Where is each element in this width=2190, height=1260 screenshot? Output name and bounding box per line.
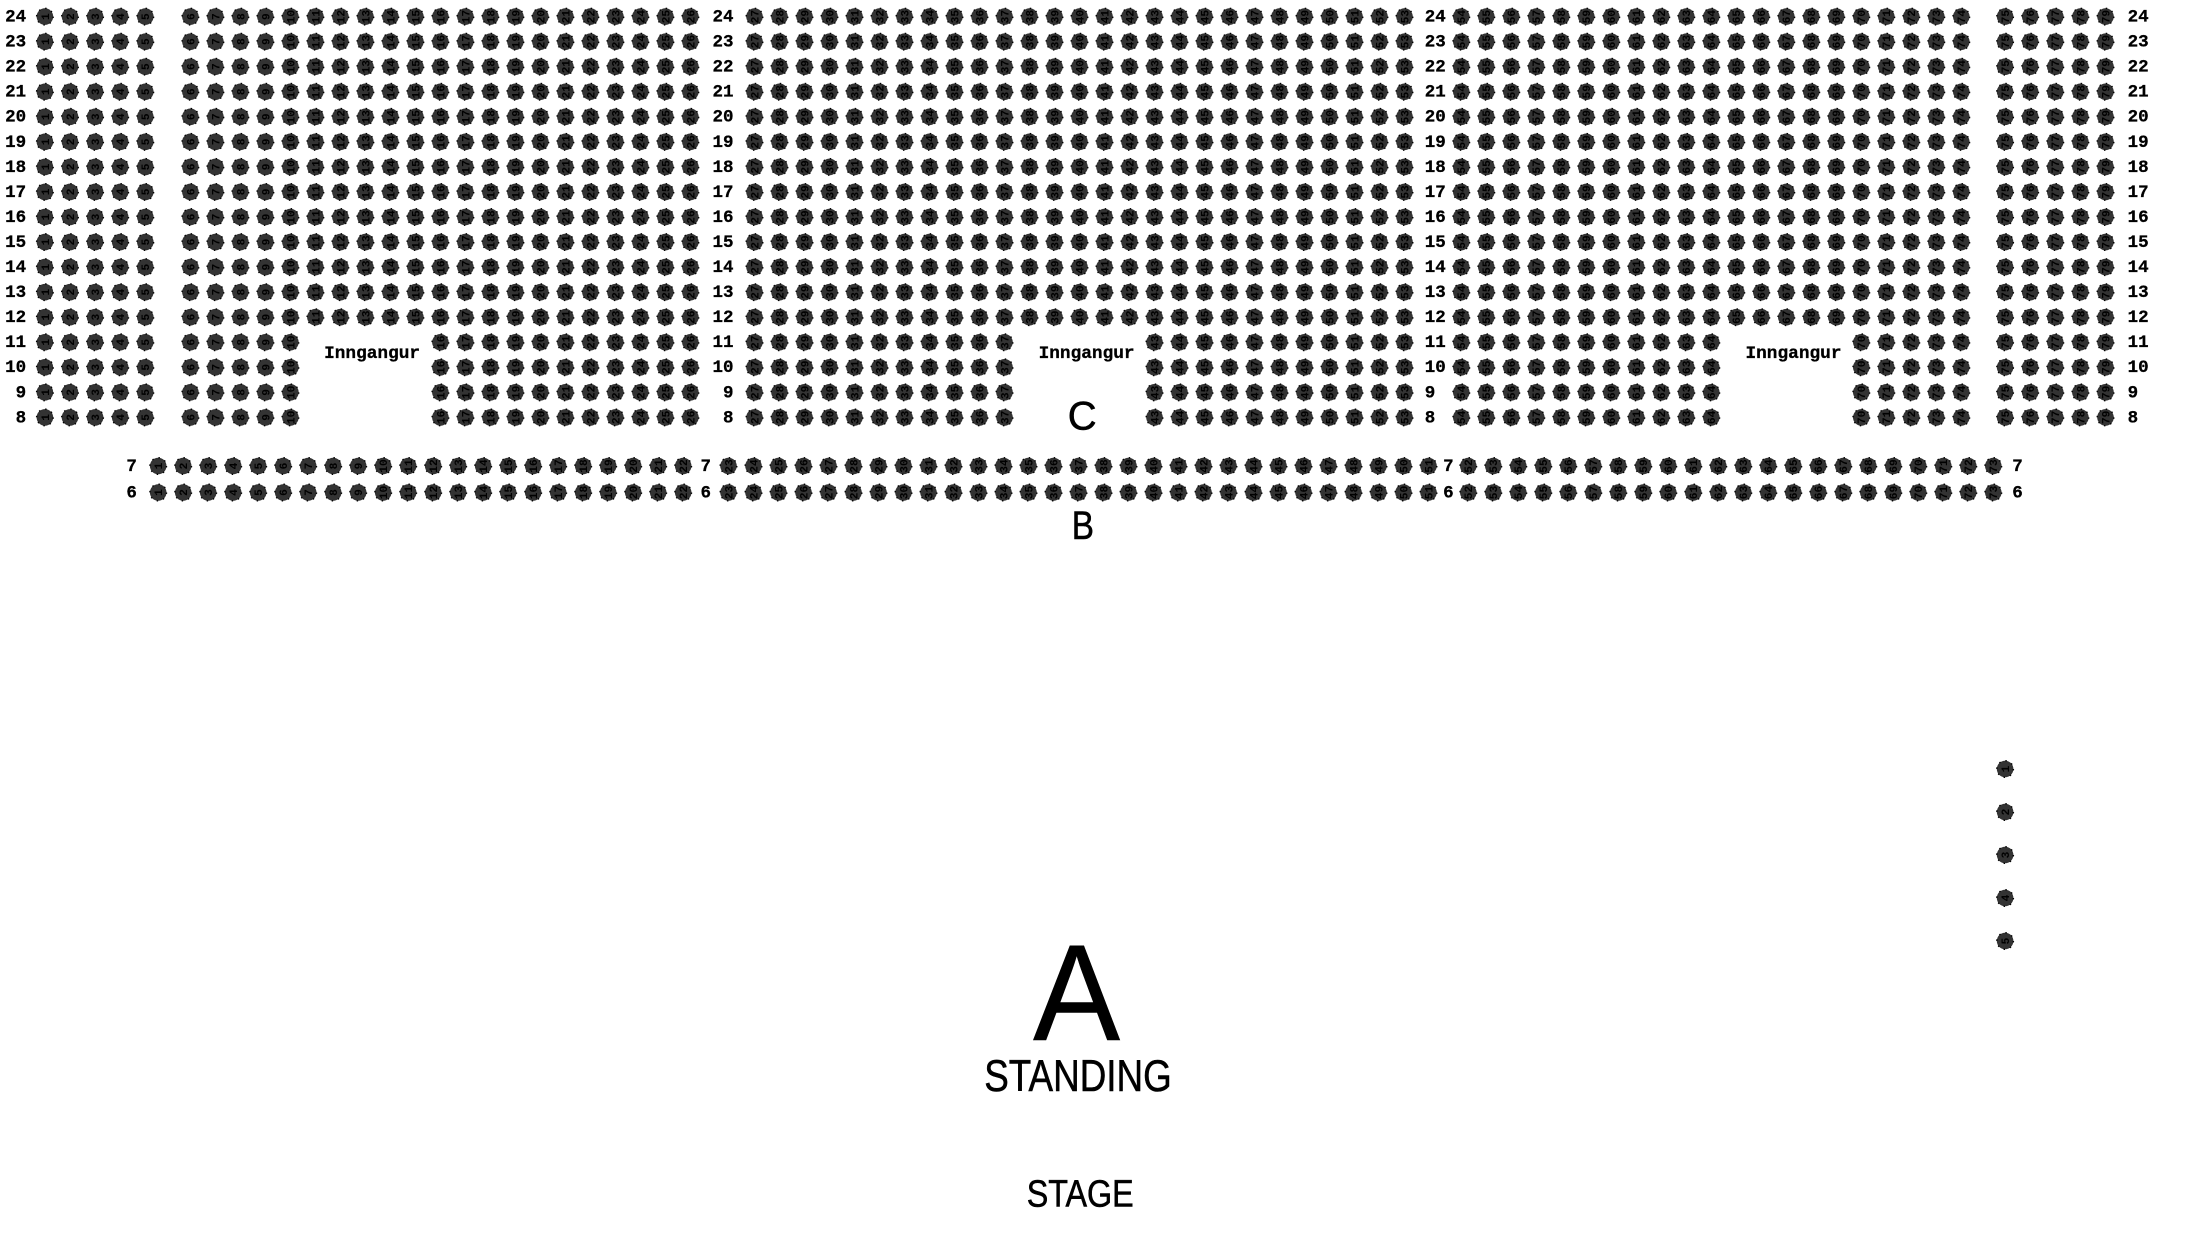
svg-text:Inngangur: Inngangur xyxy=(324,344,420,364)
svg-text:21: 21 xyxy=(712,83,733,103)
svg-text:22: 22 xyxy=(2128,58,2149,78)
svg-text:20: 20 xyxy=(1425,108,1446,128)
svg-text:17: 17 xyxy=(1425,183,1446,203)
svg-text:20: 20 xyxy=(5,108,26,128)
svg-text:19: 19 xyxy=(5,133,26,153)
svg-text:15: 15 xyxy=(5,233,26,253)
svg-text:18: 18 xyxy=(1425,158,1446,178)
svg-text:24: 24 xyxy=(1425,8,1446,28)
svg-text:10: 10 xyxy=(2128,358,2149,378)
svg-text:23: 23 xyxy=(712,33,733,53)
svg-text:16: 16 xyxy=(712,208,733,228)
svg-text:12: 12 xyxy=(1425,308,1446,328)
svg-text:14: 14 xyxy=(712,258,733,278)
svg-text:8: 8 xyxy=(16,408,27,428)
svg-text:STANDING: STANDING xyxy=(984,1052,1172,1101)
svg-text:13: 13 xyxy=(712,283,733,303)
svg-text:STAGE: STAGE xyxy=(1027,1173,1134,1215)
svg-text:12: 12 xyxy=(2128,308,2149,328)
svg-text:23: 23 xyxy=(5,33,26,53)
svg-text:Inngangur: Inngangur xyxy=(1745,344,1841,364)
svg-text:10: 10 xyxy=(5,358,26,378)
svg-text:B: B xyxy=(1072,504,1094,548)
svg-text:23: 23 xyxy=(1425,33,1446,53)
svg-text:2: 2 xyxy=(2001,808,2013,815)
svg-text:18: 18 xyxy=(5,158,26,178)
svg-text:1: 1 xyxy=(2001,765,2013,772)
svg-text:11: 11 xyxy=(2128,333,2149,353)
svg-text:6: 6 xyxy=(2012,483,2023,503)
svg-text:6: 6 xyxy=(701,483,712,503)
svg-text:9: 9 xyxy=(16,383,27,403)
svg-text:14: 14 xyxy=(2128,258,2149,278)
svg-text:21: 21 xyxy=(5,83,26,103)
svg-text:12: 12 xyxy=(5,308,26,328)
svg-text:6: 6 xyxy=(126,483,137,503)
svg-text:7: 7 xyxy=(2012,457,2023,477)
svg-text:9: 9 xyxy=(723,383,734,403)
svg-text:24: 24 xyxy=(712,8,733,28)
svg-text:14: 14 xyxy=(1425,258,1446,278)
svg-text:17: 17 xyxy=(5,183,26,203)
svg-text:C: C xyxy=(1068,395,1097,439)
svg-text:17: 17 xyxy=(712,183,733,203)
svg-text:24: 24 xyxy=(5,8,26,28)
svg-text:18: 18 xyxy=(2128,158,2149,178)
svg-text:21: 21 xyxy=(1425,83,1446,103)
svg-text:Inngangur: Inngangur xyxy=(1039,344,1135,364)
svg-text:18: 18 xyxy=(712,158,733,178)
svg-text:8: 8 xyxy=(1425,408,1436,428)
svg-text:7: 7 xyxy=(126,457,137,477)
svg-text:A: A xyxy=(1033,917,1121,1070)
svg-text:20: 20 xyxy=(2128,108,2149,128)
svg-text:12: 12 xyxy=(712,308,733,328)
svg-text:20: 20 xyxy=(712,108,733,128)
svg-text:6: 6 xyxy=(1443,483,1454,503)
svg-text:15: 15 xyxy=(2128,233,2149,253)
svg-text:10: 10 xyxy=(712,358,733,378)
svg-text:14: 14 xyxy=(5,258,26,278)
svg-text:21: 21 xyxy=(2128,83,2149,103)
svg-text:9: 9 xyxy=(2128,383,2139,403)
svg-text:11: 11 xyxy=(1425,333,1446,353)
svg-text:13: 13 xyxy=(1425,283,1446,303)
svg-text:8: 8 xyxy=(2128,408,2139,428)
svg-text:13: 13 xyxy=(2128,283,2149,303)
svg-text:11: 11 xyxy=(5,333,26,353)
svg-text:5: 5 xyxy=(2001,937,2013,944)
svg-text:16: 16 xyxy=(1425,208,1446,228)
svg-text:16: 16 xyxy=(5,208,26,228)
svg-text:15: 15 xyxy=(712,233,733,253)
svg-text:7: 7 xyxy=(1443,457,1454,477)
svg-text:16: 16 xyxy=(2128,208,2149,228)
svg-text:24: 24 xyxy=(2128,8,2149,28)
svg-text:11: 11 xyxy=(712,333,733,353)
svg-text:13: 13 xyxy=(5,283,26,303)
svg-text:23: 23 xyxy=(2128,33,2149,53)
svg-text:19: 19 xyxy=(712,133,733,153)
svg-text:9: 9 xyxy=(1425,383,1436,403)
svg-text:15: 15 xyxy=(1425,233,1446,253)
svg-text:10: 10 xyxy=(1425,358,1446,378)
svg-text:8: 8 xyxy=(723,408,734,428)
svg-text:17: 17 xyxy=(2128,183,2149,203)
svg-text:19: 19 xyxy=(2128,133,2149,153)
svg-text:4: 4 xyxy=(2001,894,2013,901)
svg-text:22: 22 xyxy=(1425,58,1446,78)
svg-text:7: 7 xyxy=(701,457,712,477)
svg-text:22: 22 xyxy=(712,58,733,78)
svg-text:22: 22 xyxy=(5,58,26,78)
svg-text:19: 19 xyxy=(1425,133,1446,153)
svg-text:3: 3 xyxy=(2001,851,2013,858)
